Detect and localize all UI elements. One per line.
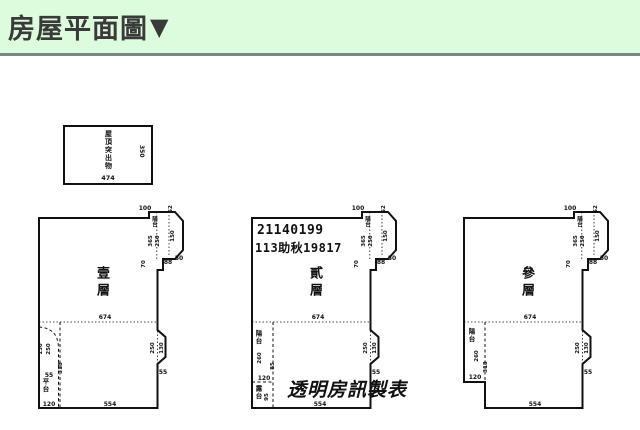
dim-bay-a: 365 bbox=[573, 235, 579, 247]
plan2-id-line2: 113助秋19817 bbox=[255, 240, 342, 255]
dim-notch-a: 250 bbox=[363, 342, 369, 354]
floor-plan-3: 100 52 365 250 150 50 88 70 674 250 130 … bbox=[455, 200, 615, 415]
roof-height-dim: 350 bbox=[138, 145, 145, 158]
plan1-bay-label: 陽台 bbox=[150, 216, 158, 227]
dim-top: 100 bbox=[139, 205, 152, 212]
dim-mid: 674 bbox=[312, 314, 325, 321]
dim-top-side: 52 bbox=[381, 205, 387, 213]
dim-bay-b: 250 bbox=[368, 235, 374, 247]
dim-bay-side: 70 bbox=[566, 260, 572, 268]
dim-left-a: 260 bbox=[257, 352, 263, 364]
dim-left-tall: 318 bbox=[483, 361, 489, 373]
dim-bay-side: 70 bbox=[141, 260, 147, 268]
dim-bottom: 554 bbox=[104, 401, 117, 408]
dim-bay-bottom: 88 bbox=[377, 259, 385, 266]
floor-label-3: 參層 bbox=[517, 266, 536, 300]
plan1-platform-label: 平台 bbox=[40, 378, 50, 393]
dim-left-bottom: 120 bbox=[43, 401, 56, 408]
dim-top-side: 52 bbox=[168, 205, 174, 213]
dim-left-a: 130 bbox=[38, 343, 44, 355]
dim-mid: 674 bbox=[524, 314, 537, 321]
dim-notch-bottom: 55 bbox=[584, 369, 592, 376]
dim-notch-a: 250 bbox=[150, 342, 156, 354]
dim-bay-bottom: 88 bbox=[164, 259, 172, 266]
plan3-bay-label: 陽台 bbox=[575, 216, 583, 227]
dim-bay-diag: 50 bbox=[600, 255, 608, 262]
section-header[interactable]: 房屋平面圖 ▼ bbox=[0, 0, 640, 56]
dim-left-a: 260 bbox=[474, 350, 480, 362]
roof-width-dim: 474 bbox=[101, 174, 115, 182]
floor-label-1: 壹層 bbox=[92, 266, 111, 300]
dim-notch-b: 130 bbox=[372, 342, 378, 354]
dim-top: 100 bbox=[352, 205, 365, 212]
plan3-outline bbox=[464, 212, 608, 408]
dim-top-side: 52 bbox=[593, 205, 599, 213]
plan2-terrace-label: 露台 bbox=[253, 385, 263, 400]
watermark: 透明房訊製表 bbox=[287, 375, 427, 402]
plan1-outline bbox=[39, 212, 183, 408]
dim-left-bottom: 120 bbox=[469, 374, 482, 381]
plan2-id-line1: 21140199 bbox=[257, 223, 324, 238]
page: 房屋平面圖 ▼ 屋頂突出物 474 350 100 52 365 250 150… bbox=[0, 0, 640, 430]
plan2-bay-label: 陽台 bbox=[363, 216, 371, 227]
dim-left-b: 250 bbox=[46, 343, 52, 355]
dim-left-b: 85 bbox=[270, 362, 276, 370]
dim-bay-a: 365 bbox=[148, 235, 154, 247]
dim-bottom: 554 bbox=[314, 401, 327, 408]
plan3-balcony-label: 陽台 bbox=[466, 328, 476, 343]
dim-bay-c: 150 bbox=[383, 230, 389, 242]
dim-notch-b: 130 bbox=[584, 342, 590, 354]
dim-mid: 674 bbox=[99, 314, 112, 321]
dim-notch-a: 250 bbox=[575, 342, 581, 354]
dim-top: 100 bbox=[564, 205, 577, 212]
dim-notch-b: 130 bbox=[159, 342, 165, 354]
page-title: 房屋平面圖 bbox=[0, 7, 148, 46]
dim-bay-b: 250 bbox=[155, 235, 161, 247]
dim-bottom: 554 bbox=[529, 401, 542, 408]
dim-bay-c: 150 bbox=[595, 230, 601, 242]
dim-bay-a: 365 bbox=[361, 235, 367, 247]
roof-protrusion-label: 屋頂突出物 bbox=[105, 130, 112, 170]
dim-left-c: 95 bbox=[264, 393, 270, 401]
dim-notch-bottom: 55 bbox=[159, 369, 167, 376]
section-triangle-icon: ▼ bbox=[150, 13, 168, 41]
dim-bay-side: 70 bbox=[354, 260, 360, 268]
plan1-platform-curve bbox=[39, 327, 59, 408]
roof-protrusion-box: 屋頂突出物 474 350 bbox=[63, 125, 153, 185]
dim-bay-diag: 50 bbox=[388, 255, 396, 262]
dim-left-mid: 120 bbox=[258, 375, 271, 382]
plan2-balcony-label: 陽台 bbox=[253, 330, 263, 345]
dim-bay-b: 250 bbox=[580, 235, 586, 247]
dim-bay-c: 150 bbox=[170, 230, 176, 242]
dim-left-tall: 318 bbox=[58, 362, 64, 374]
dim-bay-bottom: 88 bbox=[589, 259, 597, 266]
floor-label-2: 貳層 bbox=[305, 266, 324, 300]
floor-plan-1: 100 52 365 250 150 50 88 70 674 250 130 … bbox=[30, 200, 190, 415]
dim-bay-diag: 50 bbox=[175, 255, 183, 262]
